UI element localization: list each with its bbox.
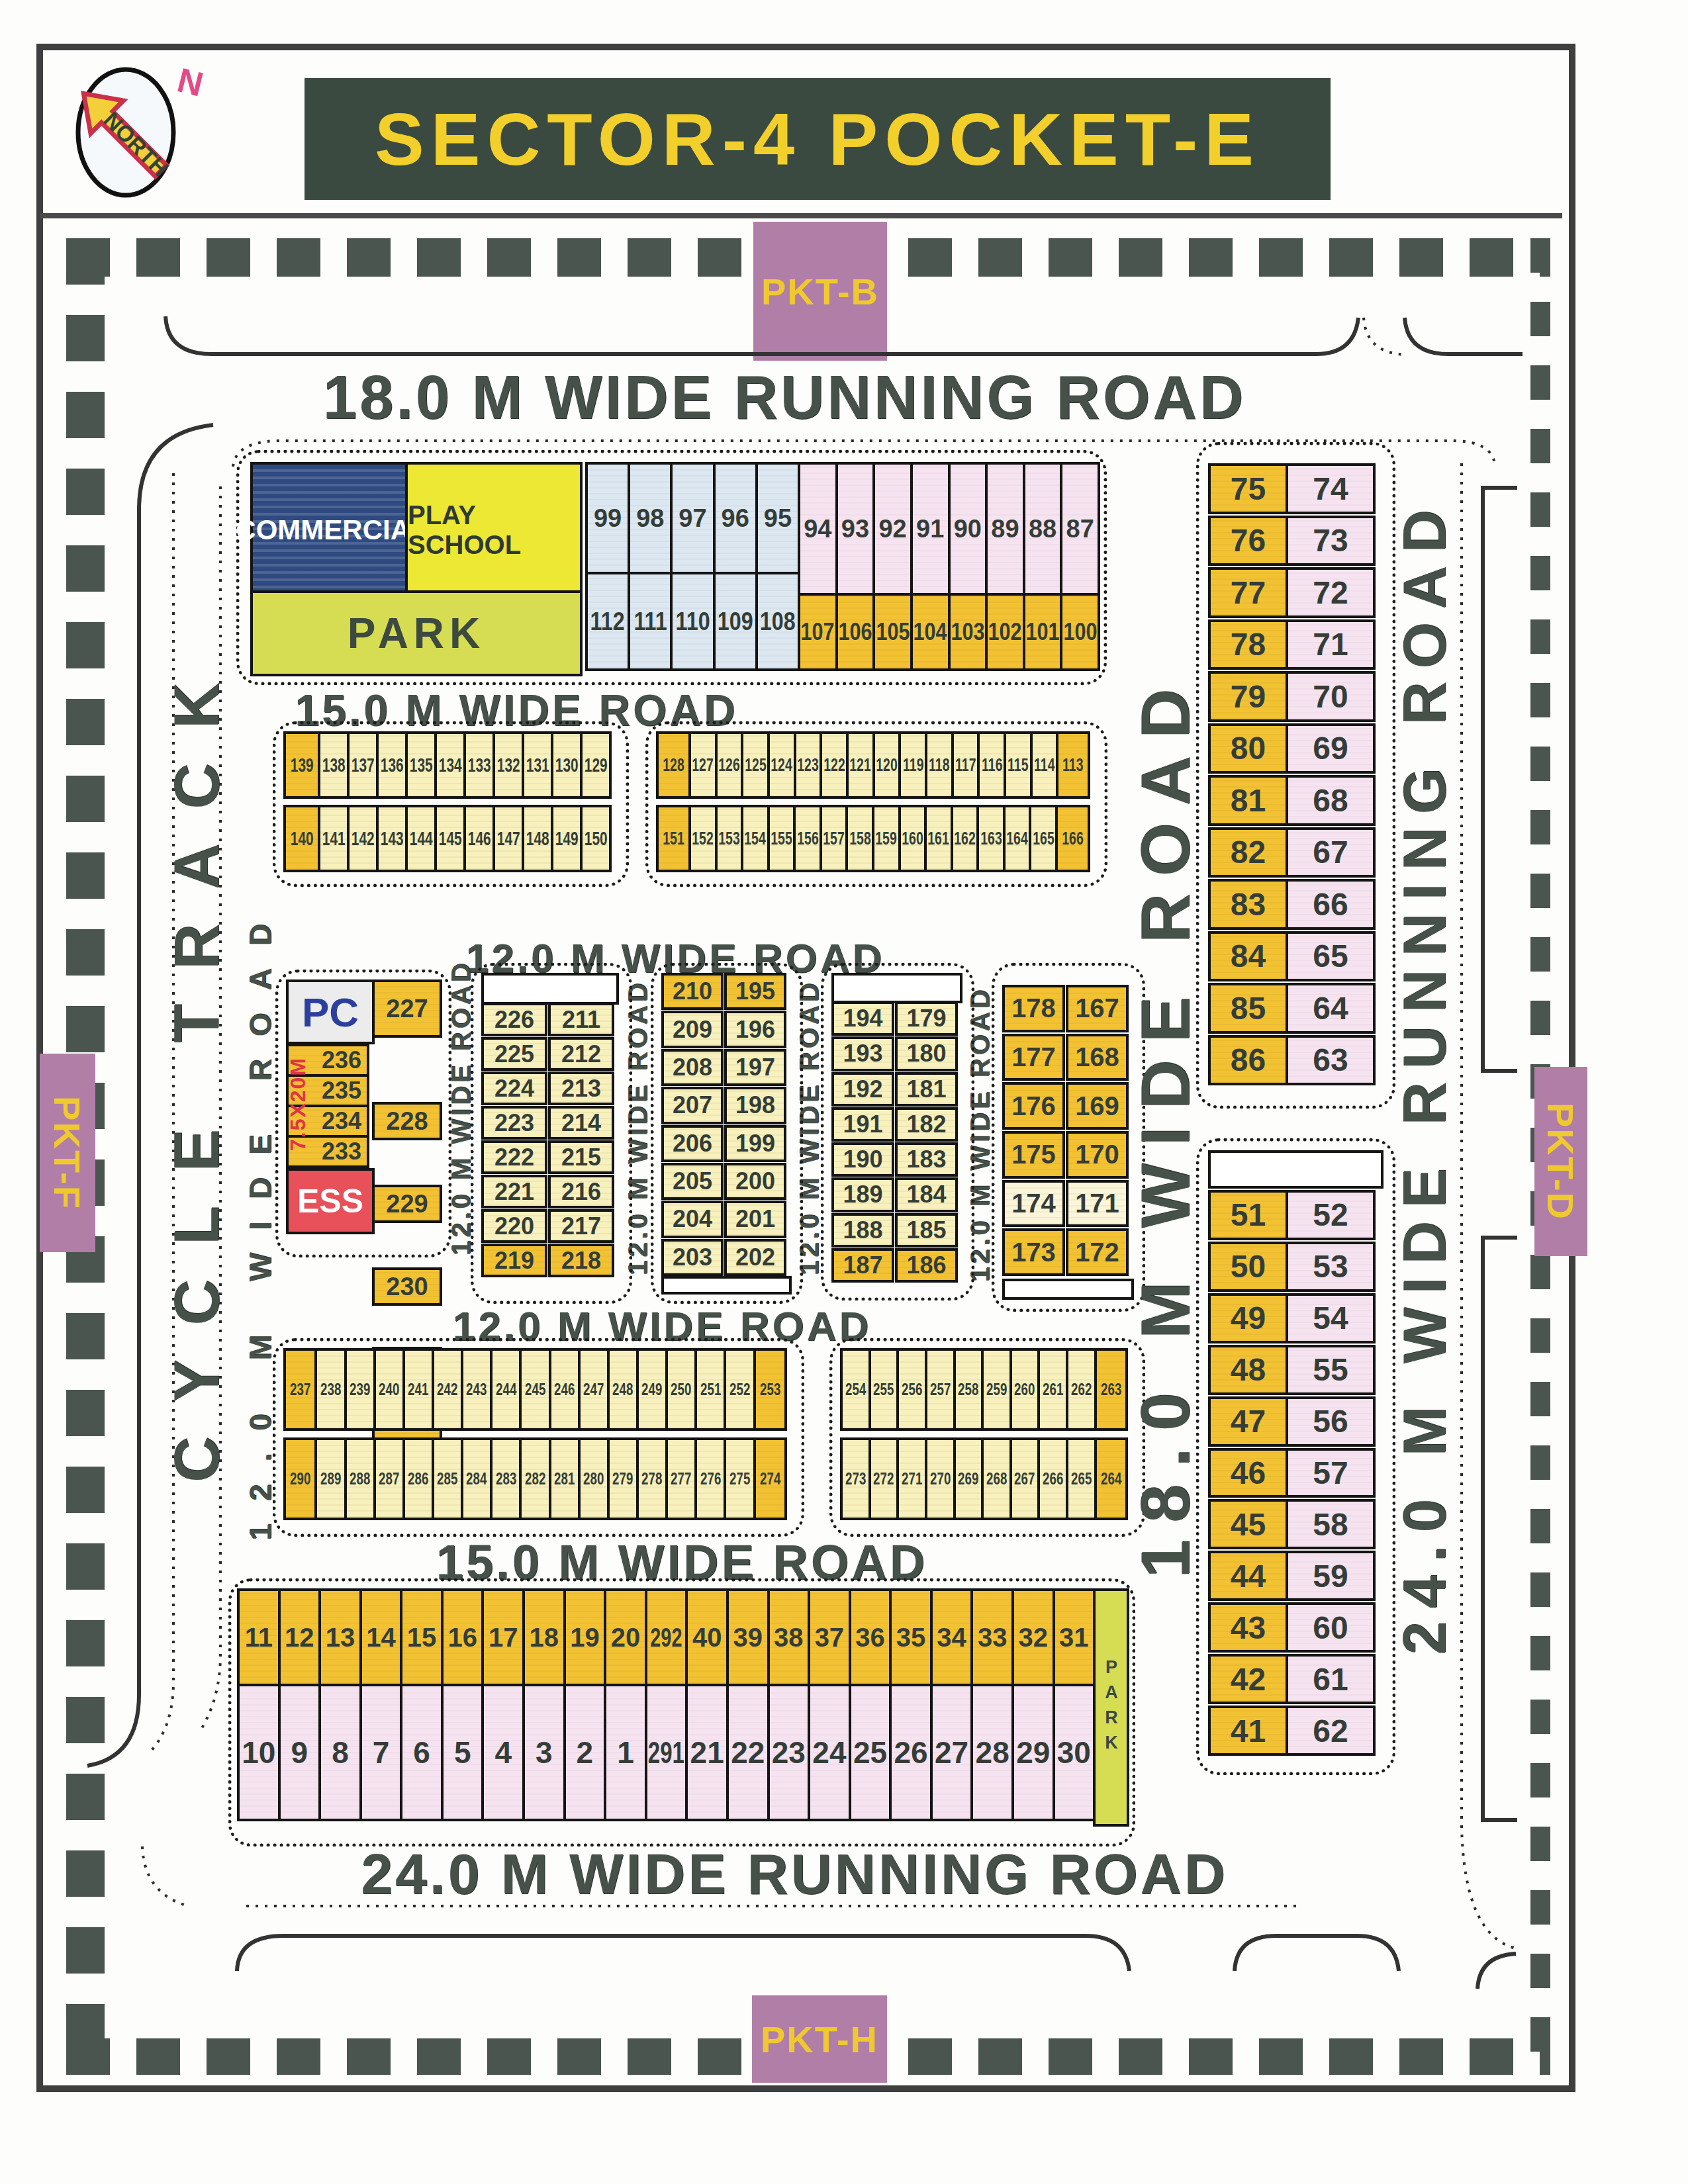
plot-number: 182: [906, 1111, 946, 1138]
plot-cell: 105: [872, 593, 913, 671]
plot-cell: 108: [755, 572, 800, 671]
plot-cell: 102: [985, 593, 1025, 671]
plot-number: 102: [988, 618, 1022, 646]
plot-number: 217: [561, 1212, 601, 1240]
plot-number: 261: [1043, 1379, 1063, 1400]
plots-140-150: 140141142143144145146147148149150: [283, 805, 612, 872]
plot-number: 237: [290, 1379, 310, 1400]
plot-number: 205: [673, 1167, 712, 1195]
plot-cell: 205: [661, 1163, 724, 1200]
plot-cell: 89: [985, 462, 1025, 596]
plots-52-62: 5253545556575859606162: [1286, 1190, 1376, 1756]
plot-number: 274: [760, 1469, 780, 1489]
plot-cell: 252: [724, 1348, 755, 1431]
plot-cell: 158: [845, 805, 874, 872]
plot-number: 146: [468, 828, 491, 850]
plot-number: 52: [1313, 1197, 1348, 1233]
plot-cell: 90: [948, 462, 988, 596]
plot-number: 123: [797, 755, 818, 776]
plot-cell: 65: [1286, 931, 1376, 982]
plot-cell: 279: [607, 1437, 639, 1520]
plot-cell: 193: [831, 1036, 894, 1071]
plot-cell: 274: [753, 1437, 787, 1520]
plot-number: 136: [381, 754, 404, 776]
plot-cell: 152: [688, 805, 718, 872]
plot-cell: 209: [661, 1011, 724, 1048]
plot-number: 75: [1231, 471, 1266, 507]
plot-cell: 116: [977, 731, 1006, 799]
plot-number: 238: [320, 1379, 341, 1400]
plot-number: 69: [1313, 730, 1348, 766]
plot-cell: 38: [767, 1588, 811, 1686]
plot-number: 160: [902, 829, 923, 849]
plot-number: 150: [585, 828, 608, 850]
plot-cell: 34: [930, 1588, 974, 1686]
plot-cell: 138: [318, 731, 350, 799]
plot-number: 11: [245, 1623, 273, 1653]
plot-cell: 53: [1286, 1242, 1376, 1292]
plot-number: 206: [673, 1130, 712, 1158]
plot-cell: 50: [1208, 1242, 1288, 1292]
plot-number: 175: [1011, 1140, 1056, 1169]
plot-number: 10: [242, 1735, 275, 1770]
plot-number: 18: [530, 1623, 559, 1653]
plot-number: 190: [843, 1146, 882, 1173]
plot-cell: 256: [896, 1348, 927, 1431]
plot-cell: 99: [585, 462, 630, 574]
plot-cell: 213: [548, 1071, 614, 1105]
plot-cell: 93: [835, 462, 876, 596]
plot-number: 140: [291, 828, 314, 850]
plot-cell: 94: [798, 462, 838, 596]
plot-number: 61: [1313, 1661, 1348, 1698]
plot-cell: 123: [794, 731, 823, 799]
plot-cell: 282: [519, 1437, 551, 1520]
plots-226-219: 226225224223222221220219: [481, 1003, 547, 1277]
plot-cell: 255: [868, 1348, 900, 1431]
plot-cell: 262: [1066, 1348, 1097, 1431]
plot-number: 41: [1231, 1713, 1266, 1749]
plot-number: 59: [1313, 1558, 1348, 1594]
plot-cell: 150: [580, 805, 612, 872]
plot-number: 20: [611, 1623, 641, 1653]
plot-cell: 168: [1066, 1034, 1129, 1081]
plot-number: 199: [735, 1130, 775, 1158]
plot-number: 287: [379, 1469, 399, 1489]
plot-number: 245: [525, 1379, 545, 1400]
plot-cell: 258: [953, 1348, 984, 1431]
plot-cell: 110: [670, 572, 715, 671]
plot-number: 224: [494, 1075, 534, 1103]
plot-number: 164: [1006, 829, 1027, 849]
plot-cell: 45: [1208, 1499, 1288, 1549]
plot-cell: 60: [1286, 1602, 1376, 1653]
plot-cell: 21: [685, 1684, 729, 1821]
plot-cell: 17: [481, 1588, 525, 1686]
plot-cell: 133: [463, 731, 495, 799]
plot-cell: 288: [344, 1437, 376, 1520]
plot-cell: 48: [1208, 1345, 1288, 1395]
plot-number: 148: [526, 828, 549, 850]
plot-number: 213: [561, 1075, 601, 1103]
plot-number: 162: [954, 829, 975, 849]
plot-cell: 155: [767, 805, 796, 872]
plot-number: 103: [951, 618, 984, 646]
plot-number: 9: [291, 1735, 308, 1770]
plot-number: 138: [322, 754, 346, 776]
plot-number: 210: [673, 978, 712, 1005]
plot-cell: 175: [1002, 1131, 1065, 1179]
plot-cell: 67: [1286, 827, 1376, 878]
plot-number: 149: [555, 828, 579, 850]
plot-cell: 224: [481, 1071, 547, 1105]
plot-cell: 98: [628, 462, 673, 574]
plot-cell: 68: [1286, 775, 1376, 826]
plot-number: 241: [408, 1379, 428, 1400]
plot-cell: 190: [831, 1142, 894, 1177]
plot-cell: 207: [661, 1087, 724, 1124]
plot-cell: 147: [492, 805, 524, 872]
plot-cell: 26: [889, 1684, 933, 1821]
plot-cell: 112: [585, 572, 630, 671]
plot-number: 236: [322, 1046, 361, 1074]
plot-cell: 86: [1208, 1035, 1288, 1086]
plots-139-129: 139138137136135134133132131130129: [283, 731, 612, 799]
plot-cell: 184: [895, 1177, 958, 1212]
header-separator: [40, 213, 1562, 218]
plot-cell: 148: [522, 805, 553, 872]
plot-number: 46: [1231, 1455, 1266, 1491]
plot-cell: 129: [580, 731, 612, 799]
plot-cell: 275: [724, 1437, 755, 1520]
plot-cell: 4: [481, 1684, 525, 1821]
plot-cell: 191: [831, 1107, 894, 1142]
plot-cell: 206: [661, 1125, 724, 1162]
plot-cell: 125: [741, 731, 770, 799]
plot-number: 134: [439, 754, 462, 776]
plot-number: 19: [570, 1623, 600, 1653]
page-title: SECTOR-4 POCKET-E: [305, 78, 1331, 200]
plot-number: 57: [1313, 1455, 1348, 1491]
plot-cell: 39: [726, 1588, 770, 1686]
plot-number: 84: [1231, 938, 1266, 974]
plot-number: 187: [843, 1251, 882, 1279]
plot-number: 126: [718, 755, 739, 776]
plot-number: 155: [771, 829, 792, 849]
plot-cell: 259: [981, 1348, 1012, 1431]
plot-cell: 92: [872, 462, 913, 596]
plot-number: 220: [494, 1212, 534, 1240]
plot-number: 131: [526, 754, 549, 776]
plot-number: 173: [1011, 1238, 1056, 1267]
plot-number: 290: [290, 1469, 310, 1489]
plot-cell: 85: [1208, 983, 1288, 1034]
plots-107-100: 107106105104103102101100: [798, 593, 1100, 671]
plot-cell: 244: [490, 1348, 522, 1431]
plot-cell: 66: [1286, 879, 1376, 930]
plot-number: 178: [1011, 993, 1056, 1023]
plot-number: 56: [1313, 1403, 1348, 1439]
plot-number: 17: [489, 1623, 518, 1653]
plot-cell: 145: [434, 805, 466, 872]
plot-number: 27: [935, 1735, 968, 1770]
plot-cell: 139: [283, 731, 320, 799]
plot-cell: 285: [432, 1437, 463, 1520]
plot-number: 130: [555, 754, 579, 776]
plot-number: 78: [1231, 626, 1266, 662]
plot-number: 186: [906, 1251, 946, 1279]
plot-cell: 25: [849, 1684, 892, 1821]
plot-cell: 77: [1208, 567, 1288, 618]
plot-number: 203: [673, 1244, 712, 1271]
plot-cell: 268: [981, 1437, 1012, 1520]
plot-number: 114: [1034, 755, 1055, 776]
plot-number: 284: [467, 1469, 487, 1489]
plot-cell: 178: [1002, 985, 1065, 1032]
plot-number: 6: [413, 1735, 430, 1770]
pocket-label-left: PKT-F: [40, 1054, 95, 1252]
plot-number: 74: [1313, 471, 1348, 507]
plot-cell: 273: [840, 1437, 871, 1520]
plot-number: 280: [583, 1469, 604, 1489]
plot-cell: 286: [402, 1437, 434, 1520]
plot-number: 286: [408, 1469, 428, 1489]
plot-cell: 62: [1286, 1706, 1376, 1756]
plot-number: 250: [671, 1379, 692, 1400]
plot-number: 253: [760, 1379, 780, 1400]
plot-number: 272: [873, 1469, 894, 1489]
plot-number: 83: [1231, 886, 1266, 923]
plot-cell: 120: [872, 731, 902, 799]
plot-number: 8: [332, 1735, 349, 1770]
plot-number: 112: [590, 608, 625, 636]
plot-number: 12: [285, 1623, 314, 1653]
plot-cell: 3: [522, 1684, 566, 1821]
plot-number: 105: [876, 618, 910, 646]
plot-cell: 188: [831, 1213, 894, 1248]
plot-cell: 198: [724, 1087, 786, 1124]
plot-number: 108: [760, 608, 796, 636]
plot-number: 98: [636, 504, 664, 533]
plot-cell: 142: [347, 805, 379, 872]
plot-number: 89: [991, 515, 1019, 543]
plot-number: 38: [774, 1623, 804, 1653]
cycle-track-label: CYCLE TRACK: [165, 665, 228, 1466]
plot-number: 68: [1313, 782, 1348, 819]
plot-number: 76: [1231, 522, 1266, 559]
plot-cell: 202: [724, 1239, 786, 1276]
road-top-label: 18.0 M WIDE RUNNING ROAD: [222, 363, 1347, 432]
plot-cell: 8: [318, 1684, 362, 1821]
plot-number: 66: [1313, 886, 1348, 923]
plot-number: 97: [679, 504, 706, 533]
plots-99-95: 9998979695: [585, 462, 800, 574]
plot-number: 267: [1014, 1469, 1035, 1489]
plot-cell: 172: [1066, 1228, 1129, 1276]
plot-cell: 179: [895, 1001, 958, 1036]
plot-number: 247: [583, 1379, 604, 1400]
plot-cell: 223: [481, 1106, 547, 1140]
plot-cell: 243: [461, 1348, 492, 1431]
plot-cell: 114: [1030, 731, 1059, 799]
plot-number: 15: [407, 1623, 437, 1653]
plot-number: 156: [797, 829, 818, 849]
plots-75-86: 757677787980818283848586: [1208, 463, 1288, 1085]
plot-cell: 266: [1037, 1437, 1068, 1520]
plot-cell: 109: [713, 572, 758, 671]
plot-cell-229: 229: [372, 1185, 442, 1223]
plot-cell: 54: [1286, 1293, 1376, 1343]
plot-number: 62: [1313, 1713, 1348, 1749]
plot-number: 93: [841, 515, 869, 543]
plot-cell: 246: [549, 1348, 581, 1431]
plot-cell: 216: [548, 1175, 614, 1208]
plot-cell: 28: [970, 1684, 1014, 1821]
plot-cell: 18: [522, 1588, 566, 1686]
plot-cell: 11: [237, 1588, 281, 1686]
plot-cell: 272: [868, 1437, 900, 1520]
plot-number: 243: [467, 1379, 487, 1400]
plot-cell: 281: [549, 1437, 581, 1520]
plot-cell: 160: [898, 805, 927, 872]
plot-number: 128: [663, 755, 684, 776]
plot-number: 133: [468, 754, 491, 776]
plot-number: 246: [554, 1379, 575, 1400]
plot-cell: 204: [661, 1201, 724, 1238]
plot-number: 40: [692, 1623, 722, 1653]
plot-cell: 186: [895, 1248, 958, 1283]
plot-cell: 115: [1004, 731, 1033, 799]
plot-number: 207: [673, 1091, 712, 1119]
plot-number: 104: [914, 618, 947, 646]
plot-cell: 260: [1009, 1348, 1041, 1431]
plot-cell: 128: [656, 731, 691, 799]
plot-cell: 91: [910, 462, 951, 596]
plot-number: 215: [561, 1144, 601, 1171]
plot-number: 4: [494, 1735, 512, 1770]
north-letter: N: [173, 60, 205, 103]
plot-cell: 22: [726, 1684, 770, 1821]
plot-number: 271: [902, 1469, 922, 1489]
plot-number: 254: [845, 1379, 866, 1400]
plot-number: 255: [873, 1379, 894, 1400]
plots-112-108: 112111110109108: [585, 572, 800, 671]
plot-number: 51: [1231, 1197, 1266, 1233]
plot-number: 227: [386, 995, 428, 1023]
plot-number: 193: [843, 1040, 882, 1068]
plot-cell: 10: [237, 1684, 281, 1821]
plot-cell: 176: [1002, 1082, 1065, 1130]
plot-cell: 249: [636, 1348, 668, 1431]
plot-number: 248: [612, 1379, 633, 1400]
plots-11-31: 1112131415161718192029240393837363534333…: [237, 1588, 1096, 1686]
plot-number: 144: [410, 828, 433, 850]
plot-cell: 30: [1053, 1684, 1096, 1821]
plot-number: 109: [718, 608, 753, 636]
plot-cell: 84: [1208, 931, 1288, 982]
plot-cell: 127: [688, 731, 718, 799]
plots-179-186: 179180181182183184185186: [895, 1001, 958, 1283]
plots-273-264: 273272271270269268267266265264: [840, 1437, 1128, 1520]
plot-cell: 214: [548, 1106, 614, 1140]
plot-number: 119: [903, 755, 923, 776]
plot-cell: 97: [670, 462, 715, 574]
plot-number: 161: [928, 829, 949, 849]
plot-number: 183: [906, 1146, 946, 1173]
plots-167-172: 167168169170171172: [1066, 985, 1129, 1276]
plot-cell: 174: [1002, 1180, 1065, 1228]
plot-cell: 132: [492, 731, 524, 799]
plot-cell: 19: [563, 1588, 607, 1686]
plot-cell: 2: [563, 1684, 607, 1821]
plot-number: 223: [494, 1109, 534, 1137]
plot-number: 168: [1075, 1042, 1119, 1072]
plot-cell: 104: [910, 593, 951, 671]
plot-cell: 289: [314, 1437, 346, 1520]
plot-number: 101: [1026, 618, 1060, 646]
plot-cell: 44: [1208, 1551, 1288, 1601]
plot-number: 172: [1075, 1238, 1119, 1267]
plot-number: 291: [648, 1735, 684, 1770]
plot-cell: 183: [895, 1142, 958, 1177]
plot-cell: 113: [1056, 731, 1090, 799]
plot-number: 225: [494, 1040, 534, 1068]
plot-cell: 79: [1208, 671, 1288, 722]
plot-cell: 156: [793, 805, 822, 872]
plots-194-187: 194193192191190189188187: [831, 1001, 894, 1283]
plot-number: 92: [878, 515, 906, 543]
plot-cell: 58: [1286, 1499, 1376, 1549]
plot-number: 259: [986, 1379, 1007, 1400]
plot-number: 221: [494, 1178, 534, 1206]
plot-number: 240: [379, 1379, 399, 1400]
plot-number: 202: [735, 1244, 775, 1271]
plot-number: 49: [1231, 1300, 1266, 1336]
plot-number: 30: [1057, 1735, 1091, 1770]
plot-cell: 61: [1286, 1654, 1376, 1704]
plot-cell: 251: [694, 1348, 726, 1431]
plot-number: 5: [454, 1735, 471, 1770]
plot-number: 288: [350, 1469, 370, 1489]
plot-cell: 78: [1208, 619, 1288, 670]
plot-cell: 177: [1002, 1034, 1065, 1081]
empty-strip: [831, 973, 962, 1003]
plot-cell: 27: [930, 1684, 974, 1821]
plot-number: 2: [577, 1735, 594, 1770]
plot-size-note: 7.5X20M: [285, 1034, 311, 1173]
plot-cell: 280: [578, 1437, 610, 1520]
plot-number: 214: [561, 1109, 601, 1137]
plot-cell: 32: [1011, 1588, 1055, 1686]
plot-number: 177: [1011, 1042, 1056, 1072]
plot-number: 127: [692, 755, 714, 776]
plot-number: 71: [1313, 626, 1348, 662]
plot-cell: 238: [314, 1348, 346, 1431]
plot-number: 233: [322, 1138, 361, 1165]
plot-number: 36: [855, 1623, 885, 1653]
plot-number: 208: [673, 1054, 712, 1081]
plot-number: 87: [1066, 515, 1094, 543]
plot-cell: 149: [551, 805, 583, 872]
plot-cell: 161: [924, 805, 953, 872]
plot-cell: 46: [1208, 1448, 1288, 1498]
plot-cell: 74: [1286, 463, 1376, 514]
plot-number: 50: [1231, 1248, 1266, 1285]
plot-cell: 1: [604, 1684, 647, 1821]
plot-cell: 119: [898, 731, 927, 799]
plot-cell: 212: [548, 1037, 614, 1071]
plot-number: 235: [322, 1077, 361, 1105]
